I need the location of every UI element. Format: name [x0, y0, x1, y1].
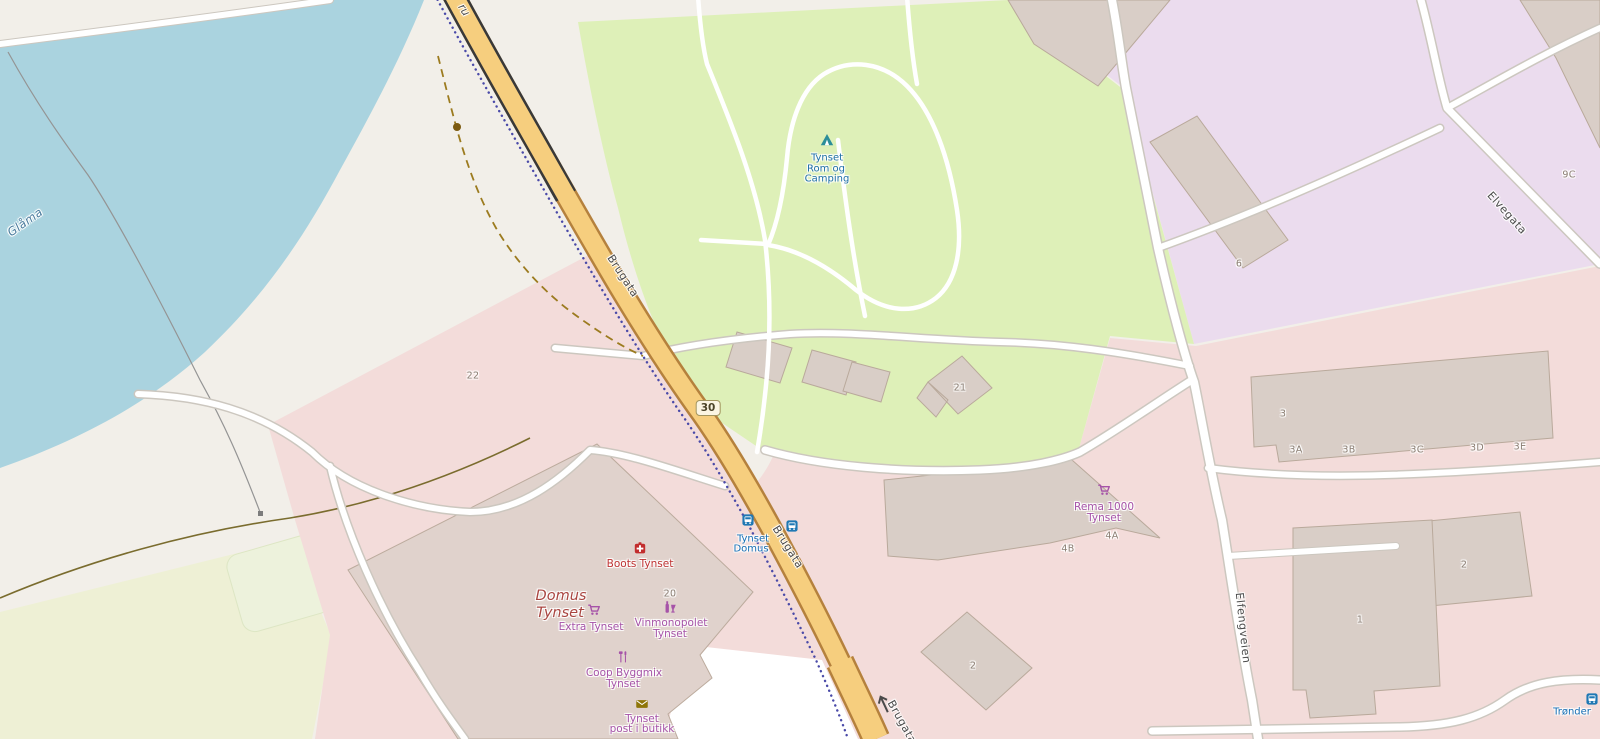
route-shield-30: 30	[696, 400, 721, 416]
map-tiles	[0, 0, 1600, 739]
map-canvas[interactable]: 30 BrugataBrugataBrugataElvegataElfengve…	[0, 0, 1600, 739]
